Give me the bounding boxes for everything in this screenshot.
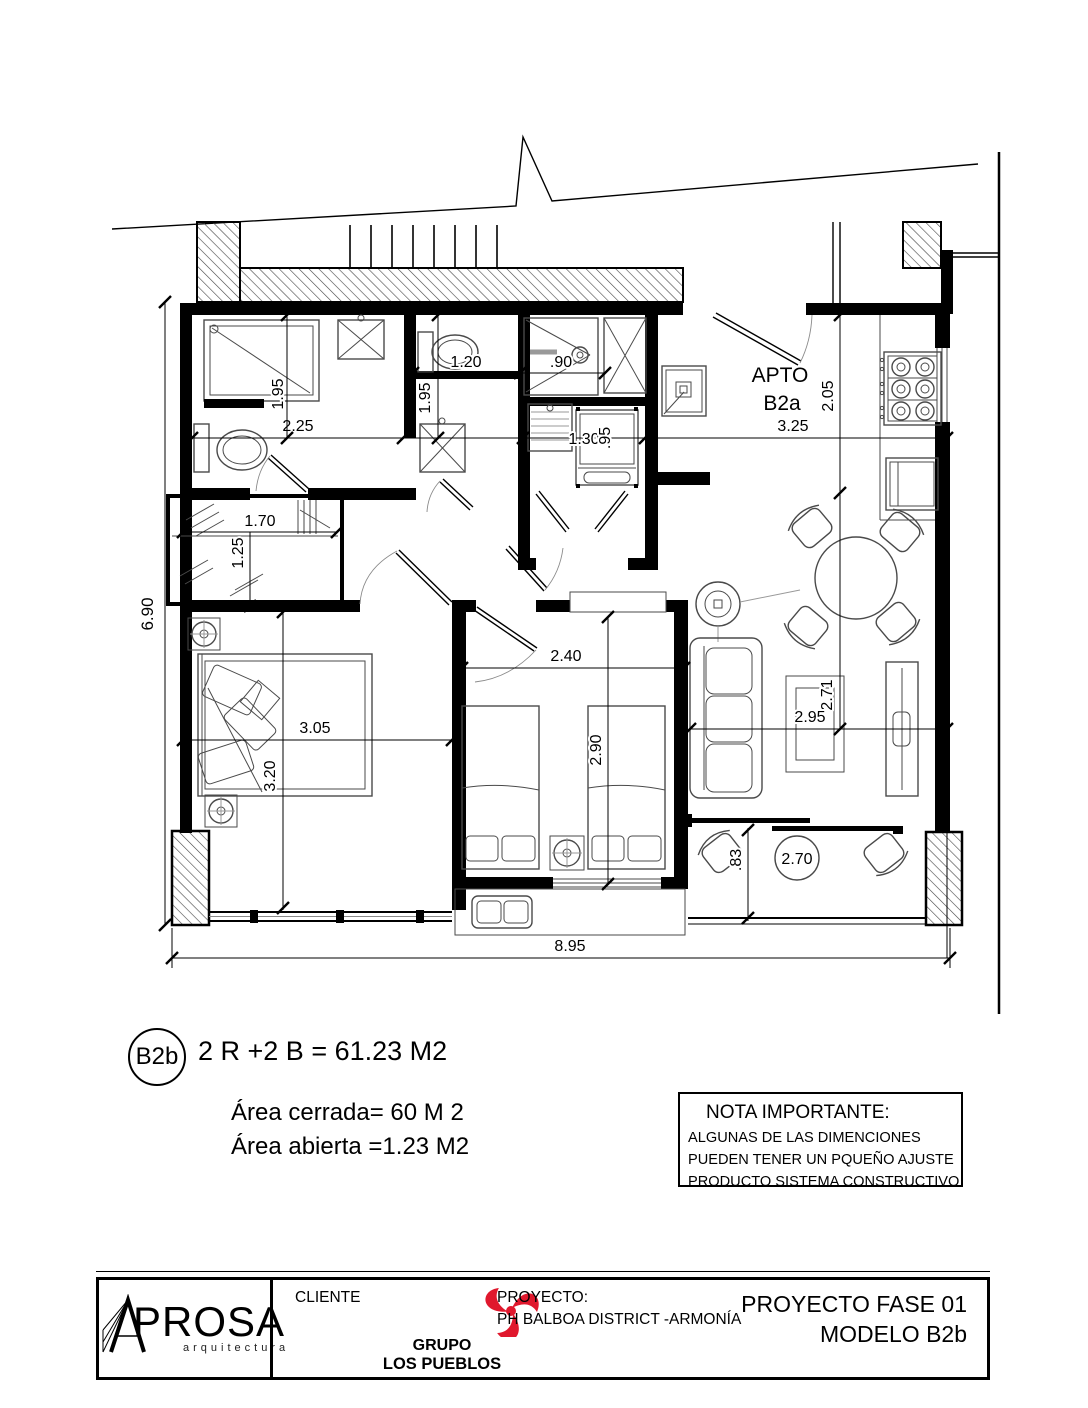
svg-text:2.71: 2.71 [819, 679, 836, 710]
dim-laundry-depth: .95 [597, 427, 614, 449]
svg-text:2.90: 2.90 [588, 734, 605, 765]
master-bed [197, 654, 372, 796]
svg-text:1.30: 1.30 [568, 431, 599, 448]
svg-text:3.05: 3.05 [299, 720, 330, 737]
svg-text:3.20: 3.20 [262, 760, 279, 791]
twin-bed [588, 706, 665, 869]
hatched-walls [172, 222, 962, 925]
ceiling-fan [188, 618, 220, 650]
area-closed: Área cerrada= 60 M 2 [231, 1099, 464, 1127]
kitchen-sink [662, 366, 706, 416]
ceiling-fan [205, 795, 237, 827]
svg-text:.95: .95 [597, 427, 614, 449]
note-line: PRODUCTO SISTEMA CONSTRUCTIVO [688, 1174, 959, 1190]
corridor-ticks [350, 225, 497, 268]
model-name: MODELO B2b [820, 1321, 967, 1348]
firm-subtitle: arquitectura [183, 1342, 289, 1354]
client-name-line2: LOS PUEBLOS [382, 1355, 502, 1374]
area-formula: 2 R +2 B = 61.23 M2 [198, 1036, 447, 1067]
svg-text:.83: .83 [728, 849, 745, 871]
dim-kitchen-depth: 2.05 2.71 [819, 309, 846, 735]
svg-text:2.40: 2.40 [550, 648, 581, 665]
title-block: PROSA arquitectura CLIENTE GRUPO LOS PUE… [96, 1277, 990, 1380]
living-fan [696, 582, 800, 642]
bathroom-1 [194, 315, 384, 472]
svg-text:B2a: B2a [763, 392, 801, 415]
note-title: NOTA IMPORTANTE: [706, 1102, 890, 1124]
svg-text:1.20: 1.20 [450, 354, 481, 371]
balcony-chair [859, 829, 912, 881]
titleblock-divider [270, 1280, 273, 1377]
mechanical-closet [604, 318, 646, 393]
balcony-table: 2.70 [775, 836, 819, 880]
note-line: ALGUNAS DE LAS DIMENCIONES [688, 1130, 921, 1146]
project-name: PH BALBOA DISTRICT -ARMONÍA [497, 1311, 741, 1329]
twin-bed [462, 706, 539, 869]
project-phase: PROYECTO FASE 01 [741, 1291, 967, 1318]
svg-text:2.70: 2.70 [781, 851, 812, 868]
fridge [886, 458, 938, 510]
svg-text:.90: .90 [550, 354, 572, 371]
sheet-edge-line [96, 1271, 990, 1272]
stove [880, 352, 941, 425]
svg-text:6.90: 6.90 [138, 597, 157, 630]
balcony: 2.70 [684, 814, 926, 924]
svg-text:8.95: 8.95 [554, 938, 585, 955]
drawing-sheet: 2.70 [0, 0, 1088, 1408]
svg-text:1.95: 1.95 [270, 378, 287, 409]
important-note: NOTA IMPORTANTE: ALGUNAS DE LAS DIMENCIO… [678, 1092, 963, 1187]
client-label: CLIENTE [295, 1289, 360, 1307]
client-name-line1: GRUPO [382, 1337, 502, 1355]
sofa [690, 638, 762, 798]
svg-text:1.95: 1.95 [417, 382, 434, 413]
floor-plan: 2.70 [0, 0, 1088, 1020]
dim-living: 2.95 [684, 709, 953, 735]
area-open: Área abierta =1.23 M2 [231, 1133, 469, 1161]
dim-chain-top: 2.25 1.30 3.25 [183, 418, 953, 448]
living-dining [690, 501, 928, 798]
ceiling-fan [550, 836, 584, 870]
bay-and-bench [455, 889, 685, 935]
dim-bedroom2: 2.40 2.90 [456, 611, 690, 890]
dimensions: 2.25 1.30 3.25 1.20 .90 1.95 1.95 .95 [138, 296, 956, 968]
dim-closet: 1.70 1.25 [177, 513, 343, 612]
note-line: PUEDEN TENER UN PQUEÑO AJUSTE [688, 1152, 954, 1168]
window-band [209, 910, 452, 923]
model-badge: B2b [128, 1028, 186, 1086]
firm-name: PROSA [133, 1298, 285, 1346]
dim-bedroom1: 3.05 3.20 [177, 606, 458, 914]
dim-side-total: 6.90 [138, 296, 171, 931]
unit-label: APTO B2a [752, 364, 809, 415]
svg-text:2.95: 2.95 [794, 709, 825, 726]
svg-text:2.05: 2.05 [820, 380, 837, 411]
svg-text:3.25: 3.25 [777, 418, 808, 435]
svg-text:1.25: 1.25 [230, 537, 247, 568]
svg-text:APTO: APTO [752, 364, 809, 387]
svg-text:1.70: 1.70 [244, 513, 275, 530]
project-label: PROYECTO: [497, 1289, 588, 1307]
dining-table [780, 501, 927, 654]
